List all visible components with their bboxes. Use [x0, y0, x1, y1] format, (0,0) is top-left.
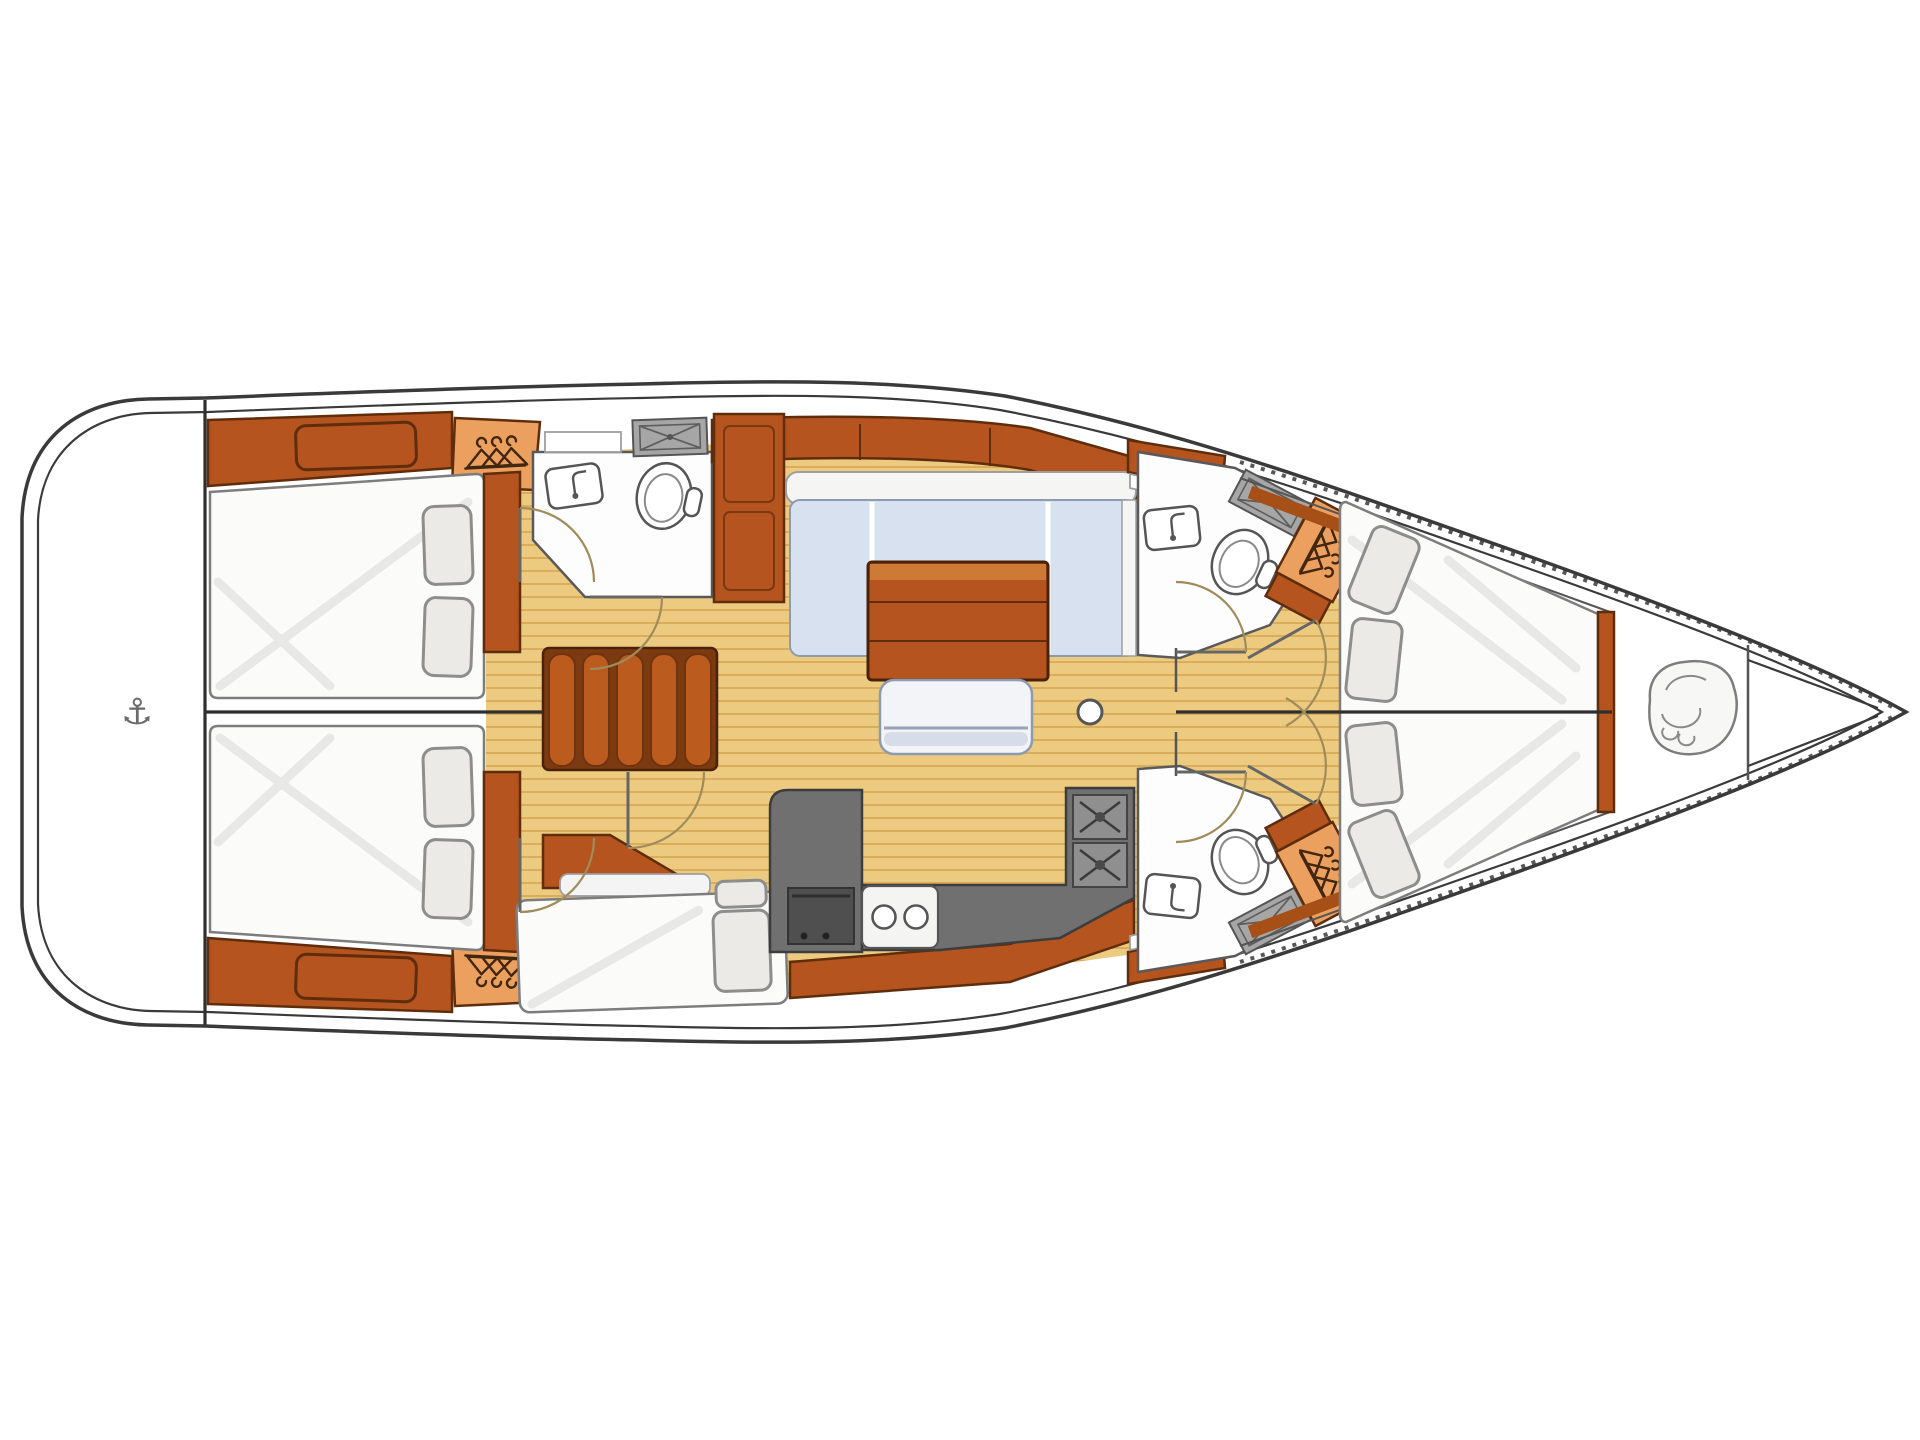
shower-grate-icon — [632, 418, 707, 457]
salon-table — [868, 562, 1048, 680]
burner-icon — [1073, 795, 1127, 839]
rope-coil-icon — [1649, 661, 1736, 754]
stair-step — [651, 654, 677, 766]
sink — [544, 462, 603, 509]
bench-seat — [880, 680, 1032, 754]
sink-basin — [905, 906, 928, 929]
companionway-stairs — [543, 648, 717, 770]
burner-icon — [1073, 843, 1127, 887]
stair-step — [685, 654, 711, 766]
stair-step — [583, 654, 609, 766]
pillow — [1345, 618, 1403, 703]
yacht-floor-plan: ⚓ — [0, 0, 1920, 1440]
stair-step — [549, 654, 575, 766]
stair-step — [617, 654, 643, 766]
sideboard-cabinet — [714, 414, 784, 602]
seat-cushion — [716, 880, 767, 908]
galley-sink — [862, 886, 938, 948]
oven — [788, 888, 854, 944]
anchor-icon: ⚓ — [121, 692, 153, 733]
sink-basin — [873, 906, 896, 929]
aft-head-counter — [545, 432, 621, 452]
pillow — [713, 910, 772, 992]
pillow — [1345, 722, 1403, 807]
mast-post — [1078, 700, 1102, 724]
